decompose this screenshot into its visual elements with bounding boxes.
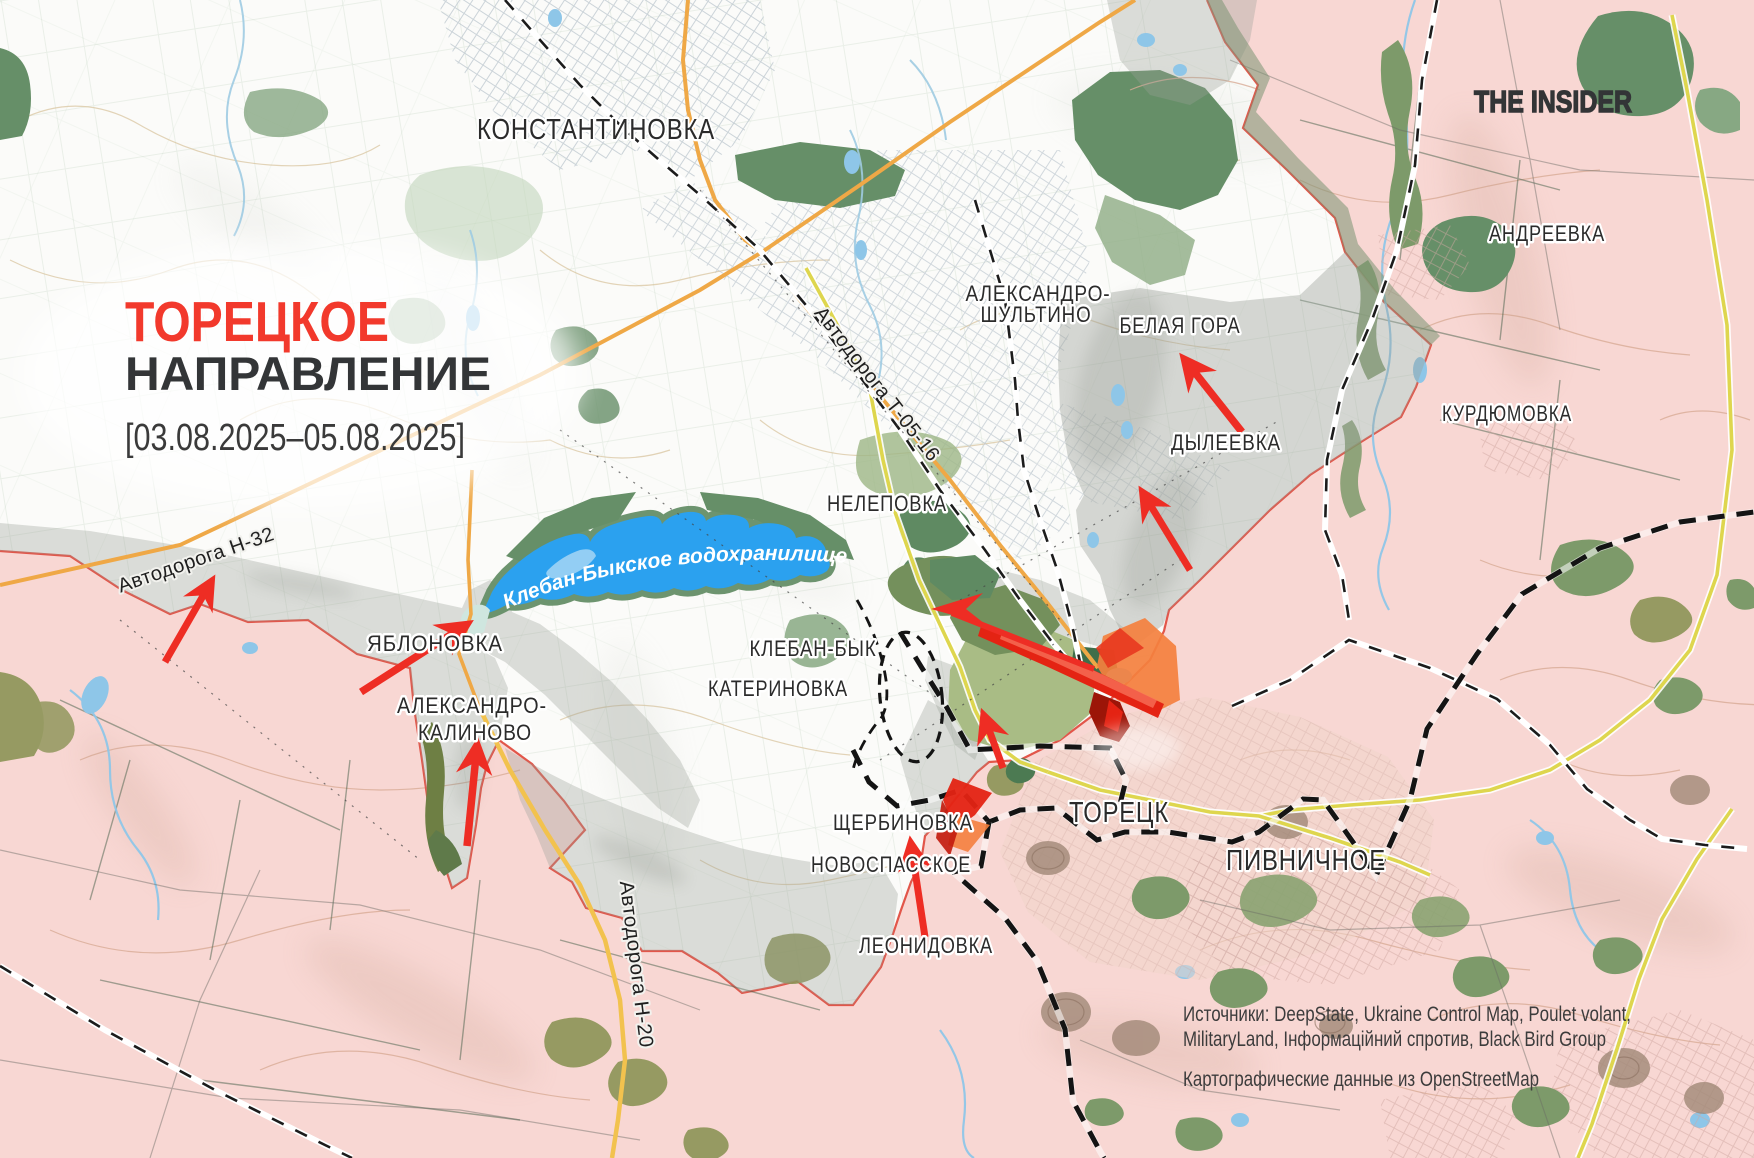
svg-text:КАЛИНОВО: КАЛИНОВО [418,720,532,745]
svg-text:БЕЛАЯ ГОРА: БЕЛАЯ ГОРА [1120,313,1241,338]
svg-text:НЕЛЕПОВКА: НЕЛЕПОВКА [827,491,947,516]
svg-text:MilitaryLand, Інформаційний сп: MilitaryLand, Інформаційний спротив, Bla… [1183,1028,1606,1051]
svg-text:ПИВНИЧНОЕ: ПИВНИЧНОЕ [1226,845,1386,877]
svg-text:КОНСТАНТИНОВКА: КОНСТАНТИНОВКА [477,114,715,146]
svg-text:ТОРЕЦКОЕ: ТОРЕЦКОЕ [125,290,389,354]
svg-text:ЯБЛОНОВКА: ЯБЛОНОВКА [367,631,503,656]
svg-text:ДЫЛЕЕВКА: ДЫЛЕЕВКА [1171,430,1281,455]
svg-text:ТОРЕЦК: ТОРЕЦК [1069,797,1169,829]
svg-text:ШУЛЬТИНО: ШУЛЬТИНО [981,302,1092,327]
svg-text:АНДРЕЕВКА: АНДРЕЕВКА [1489,221,1605,246]
svg-text:ЩЕРБИНОВКА: ЩЕРБИНОВКА [833,810,973,835]
svg-text:[03.08.2025–05.08.2025]: [03.08.2025–05.08.2025] [125,417,465,459]
svg-text:ЛЕОНИДОВКА: ЛЕОНИДОВКА [859,933,993,958]
svg-text:Источники: DeepState, Ukraine: Источники: DeepState, Ukraine Control Ma… [1183,1003,1631,1026]
svg-text:КАТЕРИНОВКА: КАТЕРИНОВКА [708,676,848,701]
svg-text:НАПРАВЛЕНИЕ: НАПРАВЛЕНИЕ [125,347,491,400]
svg-text:КЛЕБАН-БЫК: КЛЕБАН-БЫК [750,636,877,661]
svg-text:THE INSIDER: THE INSIDER [1474,84,1632,119]
svg-text:Картографические данные из Ope: Картографические данные из OpenStreetMap [1183,1068,1539,1091]
svg-text:АЛЕКСАНДРО-: АЛЕКСАНДРО- [397,693,547,718]
svg-text:НОВОСПАССКОЕ: НОВОСПАССКОЕ [811,852,971,877]
svg-text:КУРДЮМОВКА: КУРДЮМОВКА [1442,401,1572,426]
